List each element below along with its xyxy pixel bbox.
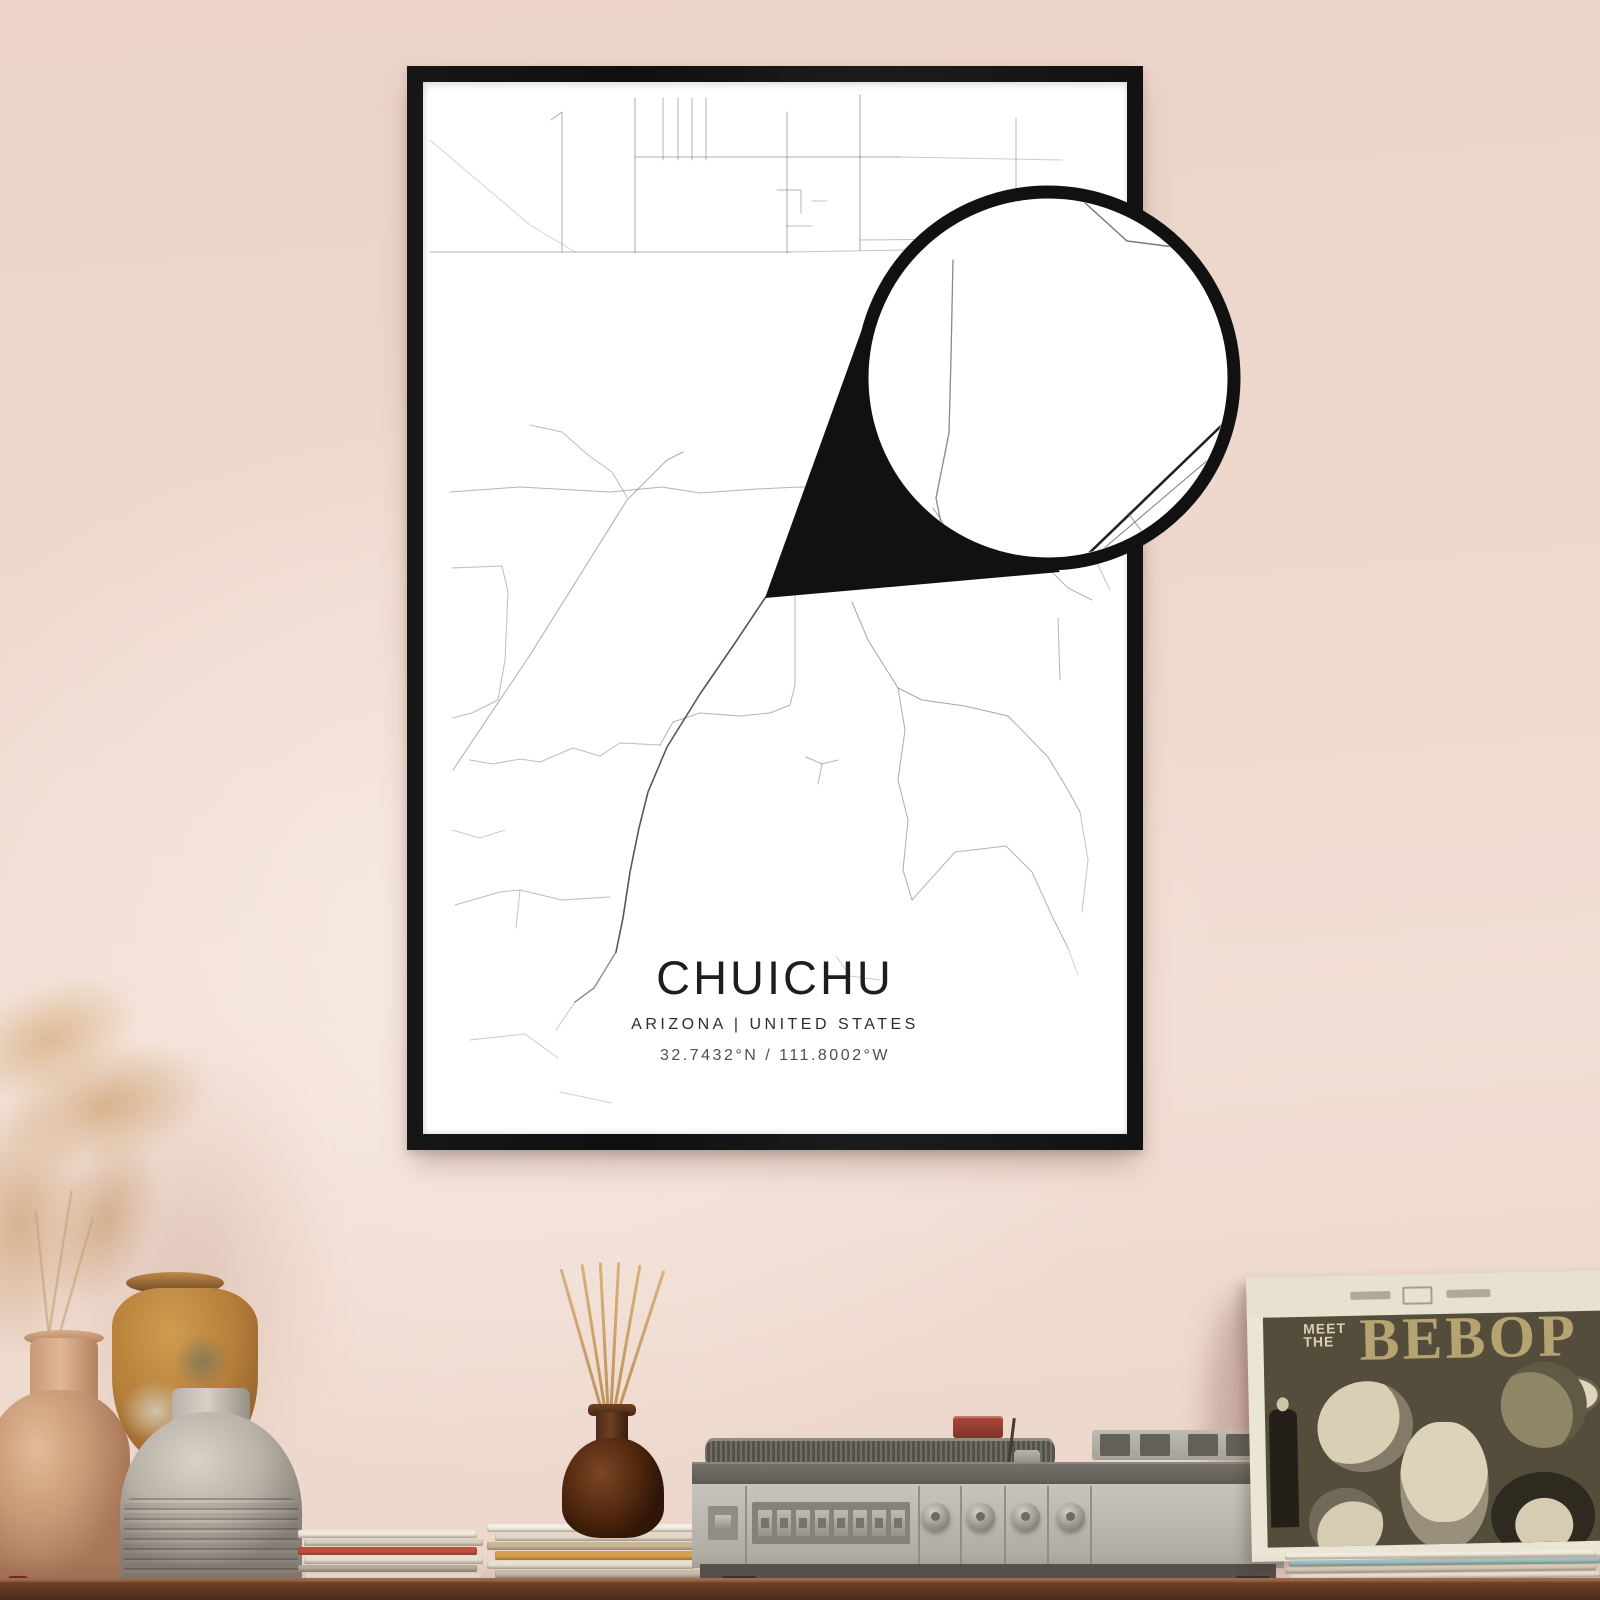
map-road bbox=[1008, 716, 1080, 812]
map-road bbox=[1058, 618, 1060, 680]
shelf-shadow bbox=[0, 1556, 1600, 1580]
poster-title: CHUICHU bbox=[423, 954, 1127, 1001]
magnifier-loupe bbox=[740, 168, 1268, 616]
map-road bbox=[452, 830, 505, 838]
map-road bbox=[551, 112, 562, 252]
magazine-spine bbox=[304, 1539, 483, 1547]
tray-slot bbox=[1140, 1434, 1170, 1456]
preset-button bbox=[815, 1510, 829, 1536]
map-road bbox=[430, 140, 575, 252]
preset-button bbox=[853, 1510, 867, 1536]
power-button bbox=[708, 1506, 738, 1540]
map-road bbox=[516, 890, 520, 928]
rotary-knob bbox=[967, 1503, 995, 1531]
rotary-knob bbox=[1057, 1503, 1085, 1531]
preset-button bbox=[872, 1510, 886, 1536]
panel-groove bbox=[1047, 1486, 1049, 1566]
record-label-logo bbox=[1402, 1286, 1432, 1305]
poster-text-block: CHUICHU ARIZONA | UNITED STATES 32.7432°… bbox=[423, 954, 1127, 1065]
map-road bbox=[1080, 812, 1088, 912]
sleeve-artwork: MEETTHE BEBOP bbox=[1263, 1310, 1600, 1548]
panel-groove bbox=[918, 1486, 920, 1566]
map-road bbox=[912, 846, 1068, 948]
magazine-spine bbox=[298, 1530, 477, 1538]
map-road bbox=[530, 425, 627, 497]
panel-groove bbox=[1004, 1486, 1006, 1566]
tan-vase bbox=[0, 1390, 130, 1584]
sleeve-header-text-smudge bbox=[1350, 1291, 1390, 1300]
preset-button bbox=[834, 1510, 848, 1536]
rotary-knob bbox=[1012, 1503, 1040, 1531]
map-road bbox=[452, 566, 508, 718]
album-face-ein bbox=[1500, 1361, 1588, 1449]
map-road bbox=[900, 157, 1062, 160]
preset-button bbox=[758, 1510, 772, 1536]
album-face-faye bbox=[1304, 1483, 1388, 1548]
map-road bbox=[453, 452, 683, 770]
preset-button bbox=[891, 1510, 905, 1536]
sleeve-header-text-smudge bbox=[1446, 1289, 1490, 1298]
turntable-headshell bbox=[953, 1416, 1003, 1438]
preset-button-row bbox=[752, 1502, 910, 1544]
record-sleeve: MEETTHE BEBOP bbox=[1246, 1271, 1600, 1562]
diffuser-bottle bbox=[562, 1438, 664, 1538]
wooden-shelf bbox=[0, 1578, 1600, 1600]
map-road bbox=[455, 890, 610, 905]
tray-slot bbox=[1100, 1434, 1130, 1456]
map-road bbox=[898, 688, 912, 900]
map-road bbox=[560, 1092, 612, 1103]
album-title-meet: MEETTHE bbox=[1303, 1322, 1346, 1349]
poster-subtitle: ARIZONA | UNITED STATES bbox=[423, 1016, 1127, 1034]
poster-coordinates: 32.7432°N / 111.8002°W bbox=[423, 1047, 1127, 1065]
magazine-spine bbox=[487, 1542, 694, 1550]
turntable-control-tray bbox=[1092, 1430, 1262, 1460]
panel-groove bbox=[745, 1486, 747, 1566]
map-road bbox=[818, 764, 822, 784]
album-figure bbox=[1269, 1409, 1299, 1528]
map-road bbox=[898, 688, 1008, 716]
album-face-jet bbox=[1399, 1421, 1490, 1548]
room-scene: CHUICHU ARIZONA | UNITED STATES 32.7432°… bbox=[0, 0, 1600, 1600]
panel-groove bbox=[1090, 1486, 1092, 1566]
tray-slot bbox=[1188, 1434, 1218, 1456]
preset-button bbox=[777, 1510, 791, 1536]
panel-groove bbox=[960, 1486, 962, 1566]
preset-button bbox=[796, 1510, 810, 1536]
map-road bbox=[470, 743, 660, 764]
magazine-spine bbox=[298, 1547, 477, 1555]
loupe-lens bbox=[862, 192, 1234, 564]
rotary-knob bbox=[922, 1503, 950, 1531]
map-road bbox=[806, 757, 838, 764]
